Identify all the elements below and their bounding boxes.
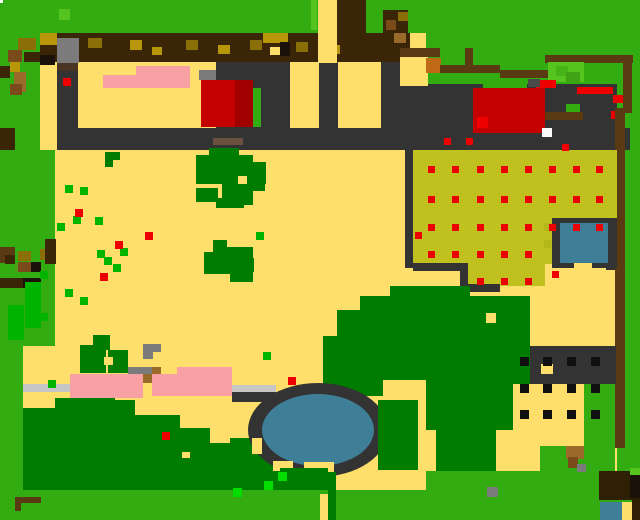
soil-spot	[88, 38, 102, 48]
shipping-bin	[57, 38, 79, 63]
crop-dot	[428, 224, 435, 231]
neon-pickup-dot	[233, 488, 242, 497]
neon-pickup-dot	[278, 472, 287, 481]
soil-seed-dot	[567, 357, 576, 366]
crop-dot	[501, 224, 508, 231]
red-item-dot	[162, 432, 170, 440]
crop-dot	[525, 278, 532, 285]
crop-dot	[525, 224, 532, 231]
crop-dot	[428, 196, 435, 203]
soil-seed-dot	[591, 357, 600, 366]
green-plant-dot	[40, 271, 48, 279]
rock	[577, 464, 586, 472]
soil-spot	[186, 40, 198, 50]
crop-dot	[428, 251, 435, 258]
soil-sand-chip	[270, 47, 280, 55]
sand-exit	[320, 494, 328, 520]
crop-dot	[552, 271, 559, 278]
green-plant-dot	[113, 264, 121, 272]
path-top-grass-stripe	[311, 0, 317, 30]
crop-dot	[596, 166, 603, 173]
fence-bl-b	[15, 497, 21, 511]
edge-brush	[10, 84, 22, 95]
crop-dot	[452, 224, 459, 231]
soil-spot	[296, 42, 308, 52]
fence-v2	[623, 55, 632, 113]
log-bar	[0, 278, 23, 288]
house-red-shade	[235, 80, 253, 127]
green-plant-dot	[263, 352, 271, 360]
soil-spot	[130, 40, 142, 50]
gray-chip	[528, 79, 540, 87]
bush-pen-dark	[566, 72, 580, 82]
rock	[143, 344, 161, 352]
crop-dot	[596, 196, 603, 203]
path-light-1	[23, 384, 70, 392]
red-chip-1	[613, 95, 623, 103]
crop-dot	[501, 166, 508, 173]
tree-cluster	[216, 198, 244, 208]
log	[18, 262, 31, 272]
fence-v1	[465, 48, 473, 73]
crop-dot	[477, 166, 484, 173]
forest-hole	[486, 313, 496, 323]
tree-pink-hole	[104, 357, 113, 365]
corner-sand	[622, 502, 632, 520]
soil-seed-dot	[591, 410, 600, 419]
white-item	[542, 128, 552, 137]
crop-dot	[549, 166, 556, 173]
white-corner-pixel	[0, 0, 3, 3]
crop-dot	[525, 196, 532, 203]
autumn-spot	[398, 12, 408, 21]
sand-col-2	[338, 62, 381, 128]
edge-brush	[18, 38, 36, 50]
soil-spot	[250, 40, 262, 50]
soil-seed-dot	[543, 384, 552, 393]
crop-dot	[477, 196, 484, 203]
green-plant-dot	[80, 297, 88, 305]
crop-dot	[501, 251, 508, 258]
path-dark-pond	[232, 392, 276, 402]
path-dark-2	[319, 62, 338, 128]
corner-brown-edge	[632, 498, 640, 520]
fence-h5	[545, 112, 583, 120]
tree-hole	[238, 176, 247, 184]
trunk	[45, 239, 56, 264]
fence-h1	[400, 48, 440, 57]
forest-sand-hole	[182, 452, 190, 458]
crop-dot	[549, 224, 556, 231]
pond-sand-2	[252, 438, 262, 454]
edge-brush	[8, 50, 22, 62]
green-plant-dot	[104, 257, 112, 265]
tree-pink-b	[80, 345, 106, 373]
crop-dot	[428, 166, 435, 173]
tree-bright	[25, 282, 41, 328]
green-plant-dot	[57, 223, 65, 231]
edge-brush	[40, 55, 55, 65]
crop-dot	[415, 232, 422, 239]
soil-spot	[152, 47, 162, 55]
tree-cluster	[252, 166, 265, 191]
grass-top-light	[59, 9, 70, 20]
crop-dot	[452, 196, 459, 203]
house-door-base	[213, 138, 243, 145]
red-item-dot	[115, 241, 123, 249]
pink-bed-b	[152, 374, 232, 396]
soil-seed-dot	[591, 384, 600, 393]
green-plant-dot	[73, 216, 81, 224]
green-plant-dot	[120, 248, 128, 256]
forest-mass	[426, 346, 513, 430]
crop-dot	[596, 224, 603, 231]
green-plant-dot	[80, 187, 88, 195]
green-plant-dot	[48, 380, 56, 388]
tree-cluster	[105, 158, 113, 167]
sand-path-top	[318, 0, 337, 63]
edge-soil-block	[0, 128, 15, 150]
tree-cluster	[196, 188, 218, 202]
olive-chip	[544, 240, 551, 248]
red-item-dot	[100, 273, 108, 281]
green-plant-dot	[65, 289, 73, 297]
log	[5, 255, 15, 264]
autumn-spot	[394, 33, 406, 43]
crop-dot	[444, 138, 451, 145]
pink-bed-top-a	[136, 66, 190, 75]
rock	[143, 352, 153, 359]
pink-bed-top-b	[103, 75, 190, 88]
soil-seed-dot	[567, 384, 576, 393]
green-plant-dot	[40, 313, 48, 321]
log	[18, 251, 31, 261]
red-item-dot	[63, 78, 71, 86]
crop-dot	[452, 251, 459, 258]
soil-seed-dot	[567, 410, 576, 419]
house-gray-cap	[199, 70, 216, 80]
tree-blob	[240, 258, 254, 272]
autumn-spot	[386, 20, 396, 30]
red-item-dot	[145, 232, 153, 240]
tree-cluster	[222, 183, 252, 198]
pink-bed-a	[70, 374, 143, 398]
neon-pickup-dot	[264, 481, 273, 490]
crop-dot	[477, 224, 484, 231]
soil-spot	[40, 33, 57, 45]
soil-seed-dot	[520, 410, 529, 419]
soil-dark-chip	[280, 42, 290, 56]
green-lane	[328, 472, 336, 520]
green-strip	[483, 80, 527, 88]
crop-dot	[501, 196, 508, 203]
crop-dot	[477, 278, 484, 285]
shipping-bin-base	[57, 63, 78, 71]
green-plant-dot	[256, 232, 264, 240]
red-item-dot	[288, 377, 296, 385]
crop-dot	[452, 166, 459, 173]
fence-h3	[500, 70, 550, 78]
farm-map-viewport[interactable]	[0, 0, 640, 520]
red-item-dot	[75, 209, 83, 217]
field-border-b1	[413, 263, 460, 271]
green-plant-dot	[65, 185, 73, 193]
tree-bright	[8, 305, 24, 340]
trough-sand	[574, 263, 592, 272]
log	[143, 374, 152, 383]
edge-brush	[0, 66, 10, 78]
crop-dot	[477, 251, 484, 258]
crop-dot	[466, 138, 473, 145]
sand-col-1	[290, 62, 319, 128]
crop-dot	[549, 196, 556, 203]
edge-brush	[10, 62, 20, 72]
pond-water	[262, 394, 374, 466]
soil-spot	[218, 45, 230, 54]
crop-dot	[501, 278, 508, 285]
crop-dot	[573, 166, 580, 173]
corner-house-dark	[630, 471, 640, 498]
soil-band-upper	[337, 0, 366, 33]
crop-dot	[573, 196, 580, 203]
house-green-edge	[253, 88, 261, 127]
corner-water	[600, 502, 622, 520]
green-plant-dot	[95, 217, 103, 225]
crop-dot	[573, 224, 580, 231]
crop-dot	[562, 144, 569, 151]
soil-seed-dot	[543, 410, 552, 419]
soil-seed-dot	[543, 357, 552, 366]
barn-item	[477, 117, 488, 128]
rock	[487, 487, 498, 497]
crop-dot	[525, 166, 532, 173]
forest-mass	[436, 430, 496, 475]
soil-seed-dot	[520, 357, 529, 366]
sand-patch-tr	[400, 56, 428, 86]
field-border-l	[405, 150, 413, 268]
edge-brush	[24, 52, 40, 62]
crop-dot	[525, 251, 532, 258]
corner-dot-green	[630, 468, 640, 475]
orange-block	[426, 58, 441, 73]
field-olive-1	[413, 150, 617, 218]
soil-seed-dot	[520, 384, 529, 393]
tree-overlay-pond	[378, 400, 418, 470]
red-strip-2	[577, 87, 613, 94]
